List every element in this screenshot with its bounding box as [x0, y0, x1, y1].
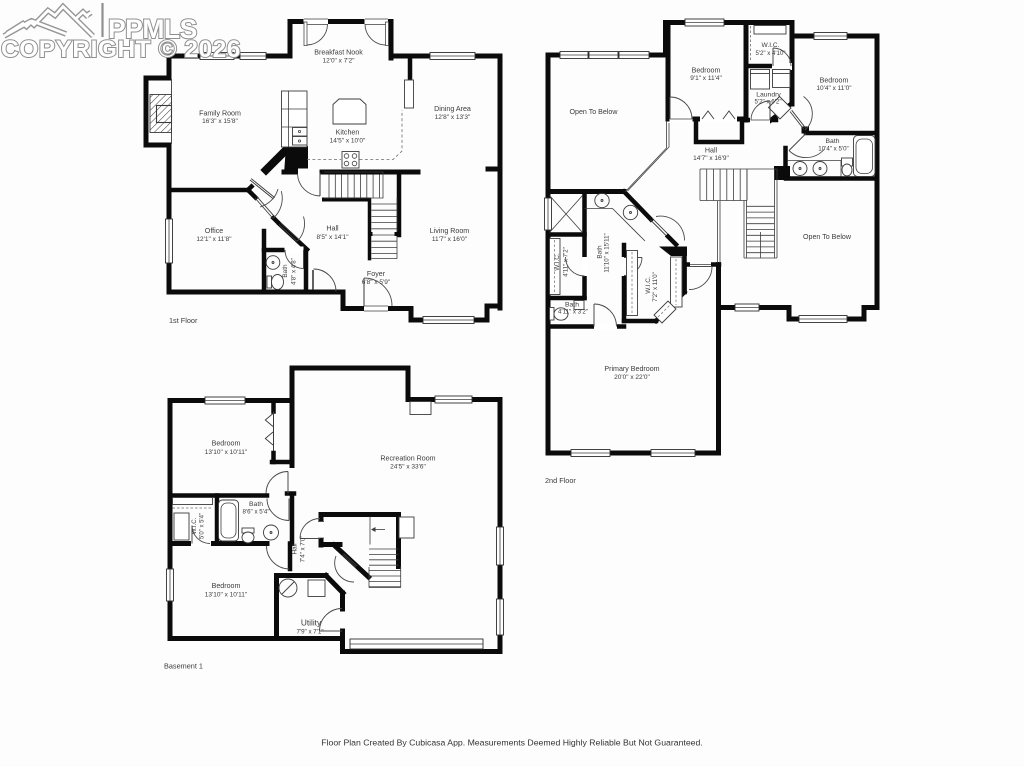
svg-text:12'0" x 7'2": 12'0" x 7'2" [322, 58, 355, 65]
svg-text:7'9" x 7'1": 7'9" x 7'1" [296, 629, 323, 636]
svg-text:Breakfast Nook: Breakfast Nook [314, 49, 363, 57]
svg-text:W.I.C.: W.I.C. [554, 253, 561, 271]
svg-text:Dining Area: Dining Area [434, 105, 471, 113]
svg-text:Bedroom: Bedroom [692, 67, 721, 75]
svg-text:4'11" x 3'2": 4'11" x 3'2" [558, 308, 588, 315]
svg-text:Hall: Hall [292, 543, 299, 554]
svg-text:COPYRIGHT © 2026: COPYRIGHT © 2026 [1, 36, 241, 63]
svg-text:8'6" x 5'4": 8'6" x 5'4" [242, 509, 269, 516]
svg-text:Floor Plan Created By Cubicasa: Floor Plan Created By Cubicasa App. Meas… [321, 738, 702, 748]
svg-text:Foyer: Foyer [367, 270, 386, 278]
svg-text:Bath: Bath [282, 264, 289, 278]
svg-text:5'2" x 4'10": 5'2" x 4'10" [755, 50, 785, 57]
svg-text:Hall: Hall [705, 146, 718, 154]
svg-text:13'10" x 10'11": 13'10" x 10'11" [205, 449, 248, 456]
svg-text:Recreation Room: Recreation Room [380, 455, 435, 463]
svg-text:Bedroom: Bedroom [212, 440, 241, 448]
svg-text:14'5" x 10'0": 14'5" x 10'0" [330, 138, 366, 145]
svg-text:11'10" x 15'11": 11'10" x 15'11" [604, 233, 611, 272]
svg-text:16'3" x 15'8": 16'3" x 15'8" [202, 118, 238, 125]
svg-text:Living Room: Living Room [430, 227, 470, 235]
svg-text:2nd Floor: 2nd Floor [545, 476, 576, 485]
svg-text:Utility: Utility [301, 618, 322, 628]
svg-text:Office: Office [205, 227, 223, 235]
svg-text:W.I.C.: W.I.C. [762, 42, 780, 49]
svg-text:24'5" x 33'6": 24'5" x 33'6" [390, 464, 426, 471]
svg-text:11'7" x 16'0": 11'7" x 16'0" [432, 236, 468, 243]
svg-text:Basement 1: Basement 1 [164, 662, 203, 671]
svg-text:20'0" x 22'0": 20'0" x 22'0" [614, 374, 650, 381]
svg-text:7'2" x 11'0": 7'2" x 11'0" [652, 272, 659, 302]
svg-text:1st Floor: 1st Floor [169, 316, 198, 325]
svg-text:8'5" x 14'1": 8'5" x 14'1" [316, 234, 349, 241]
svg-text:W.I.C.: W.I.C. [191, 517, 198, 534]
svg-text:Laundry: Laundry [756, 91, 781, 98]
svg-text:5'2" x 6'2": 5'2" x 6'2" [754, 99, 781, 106]
svg-text:4'8" x 4'8": 4'8" x 4'8" [291, 258, 298, 285]
svg-text:10'4" x 5'0": 10'4" x 5'0" [818, 146, 849, 153]
svg-text:5'0" x 5'4": 5'0" x 5'4" [200, 513, 206, 539]
svg-text:Primary Bedroom: Primary Bedroom [604, 365, 659, 373]
svg-text:6'8" x 5'9": 6'8" x 5'9" [362, 279, 391, 286]
svg-text:7'4" x 7'0": 7'4" x 7'0" [300, 536, 307, 563]
svg-text:Bedroom: Bedroom [212, 582, 241, 590]
svg-text:Family Room: Family Room [199, 110, 241, 118]
svg-text:Bedroom: Bedroom [820, 77, 849, 85]
svg-text:Open To Below: Open To Below [803, 233, 852, 241]
svg-text:14'7" x 16'9": 14'7" x 16'9" [693, 155, 729, 162]
svg-text:12'8" x 13'3": 12'8" x 13'3" [435, 114, 471, 121]
svg-text:4'11" x 7'2": 4'11" x 7'2" [563, 247, 570, 277]
svg-text:12'1" x 11'8": 12'1" x 11'8" [196, 236, 232, 243]
svg-text:Bath: Bath [826, 138, 840, 145]
svg-text:Hall: Hall [326, 225, 339, 233]
svg-text:Kitchen: Kitchen [336, 129, 360, 137]
svg-text:Bath: Bath [249, 501, 263, 508]
svg-text:Open To Below: Open To Below [570, 108, 619, 116]
svg-text:Bath: Bath [597, 245, 604, 259]
svg-text:W.I.C.: W.I.C. [645, 276, 652, 294]
svg-text:13'10" x 10'11": 13'10" x 10'11" [205, 592, 248, 599]
svg-text:9'1" x 11'4": 9'1" x 11'4" [690, 75, 722, 82]
svg-text:10'4" x 11'0": 10'4" x 11'0" [816, 85, 852, 92]
